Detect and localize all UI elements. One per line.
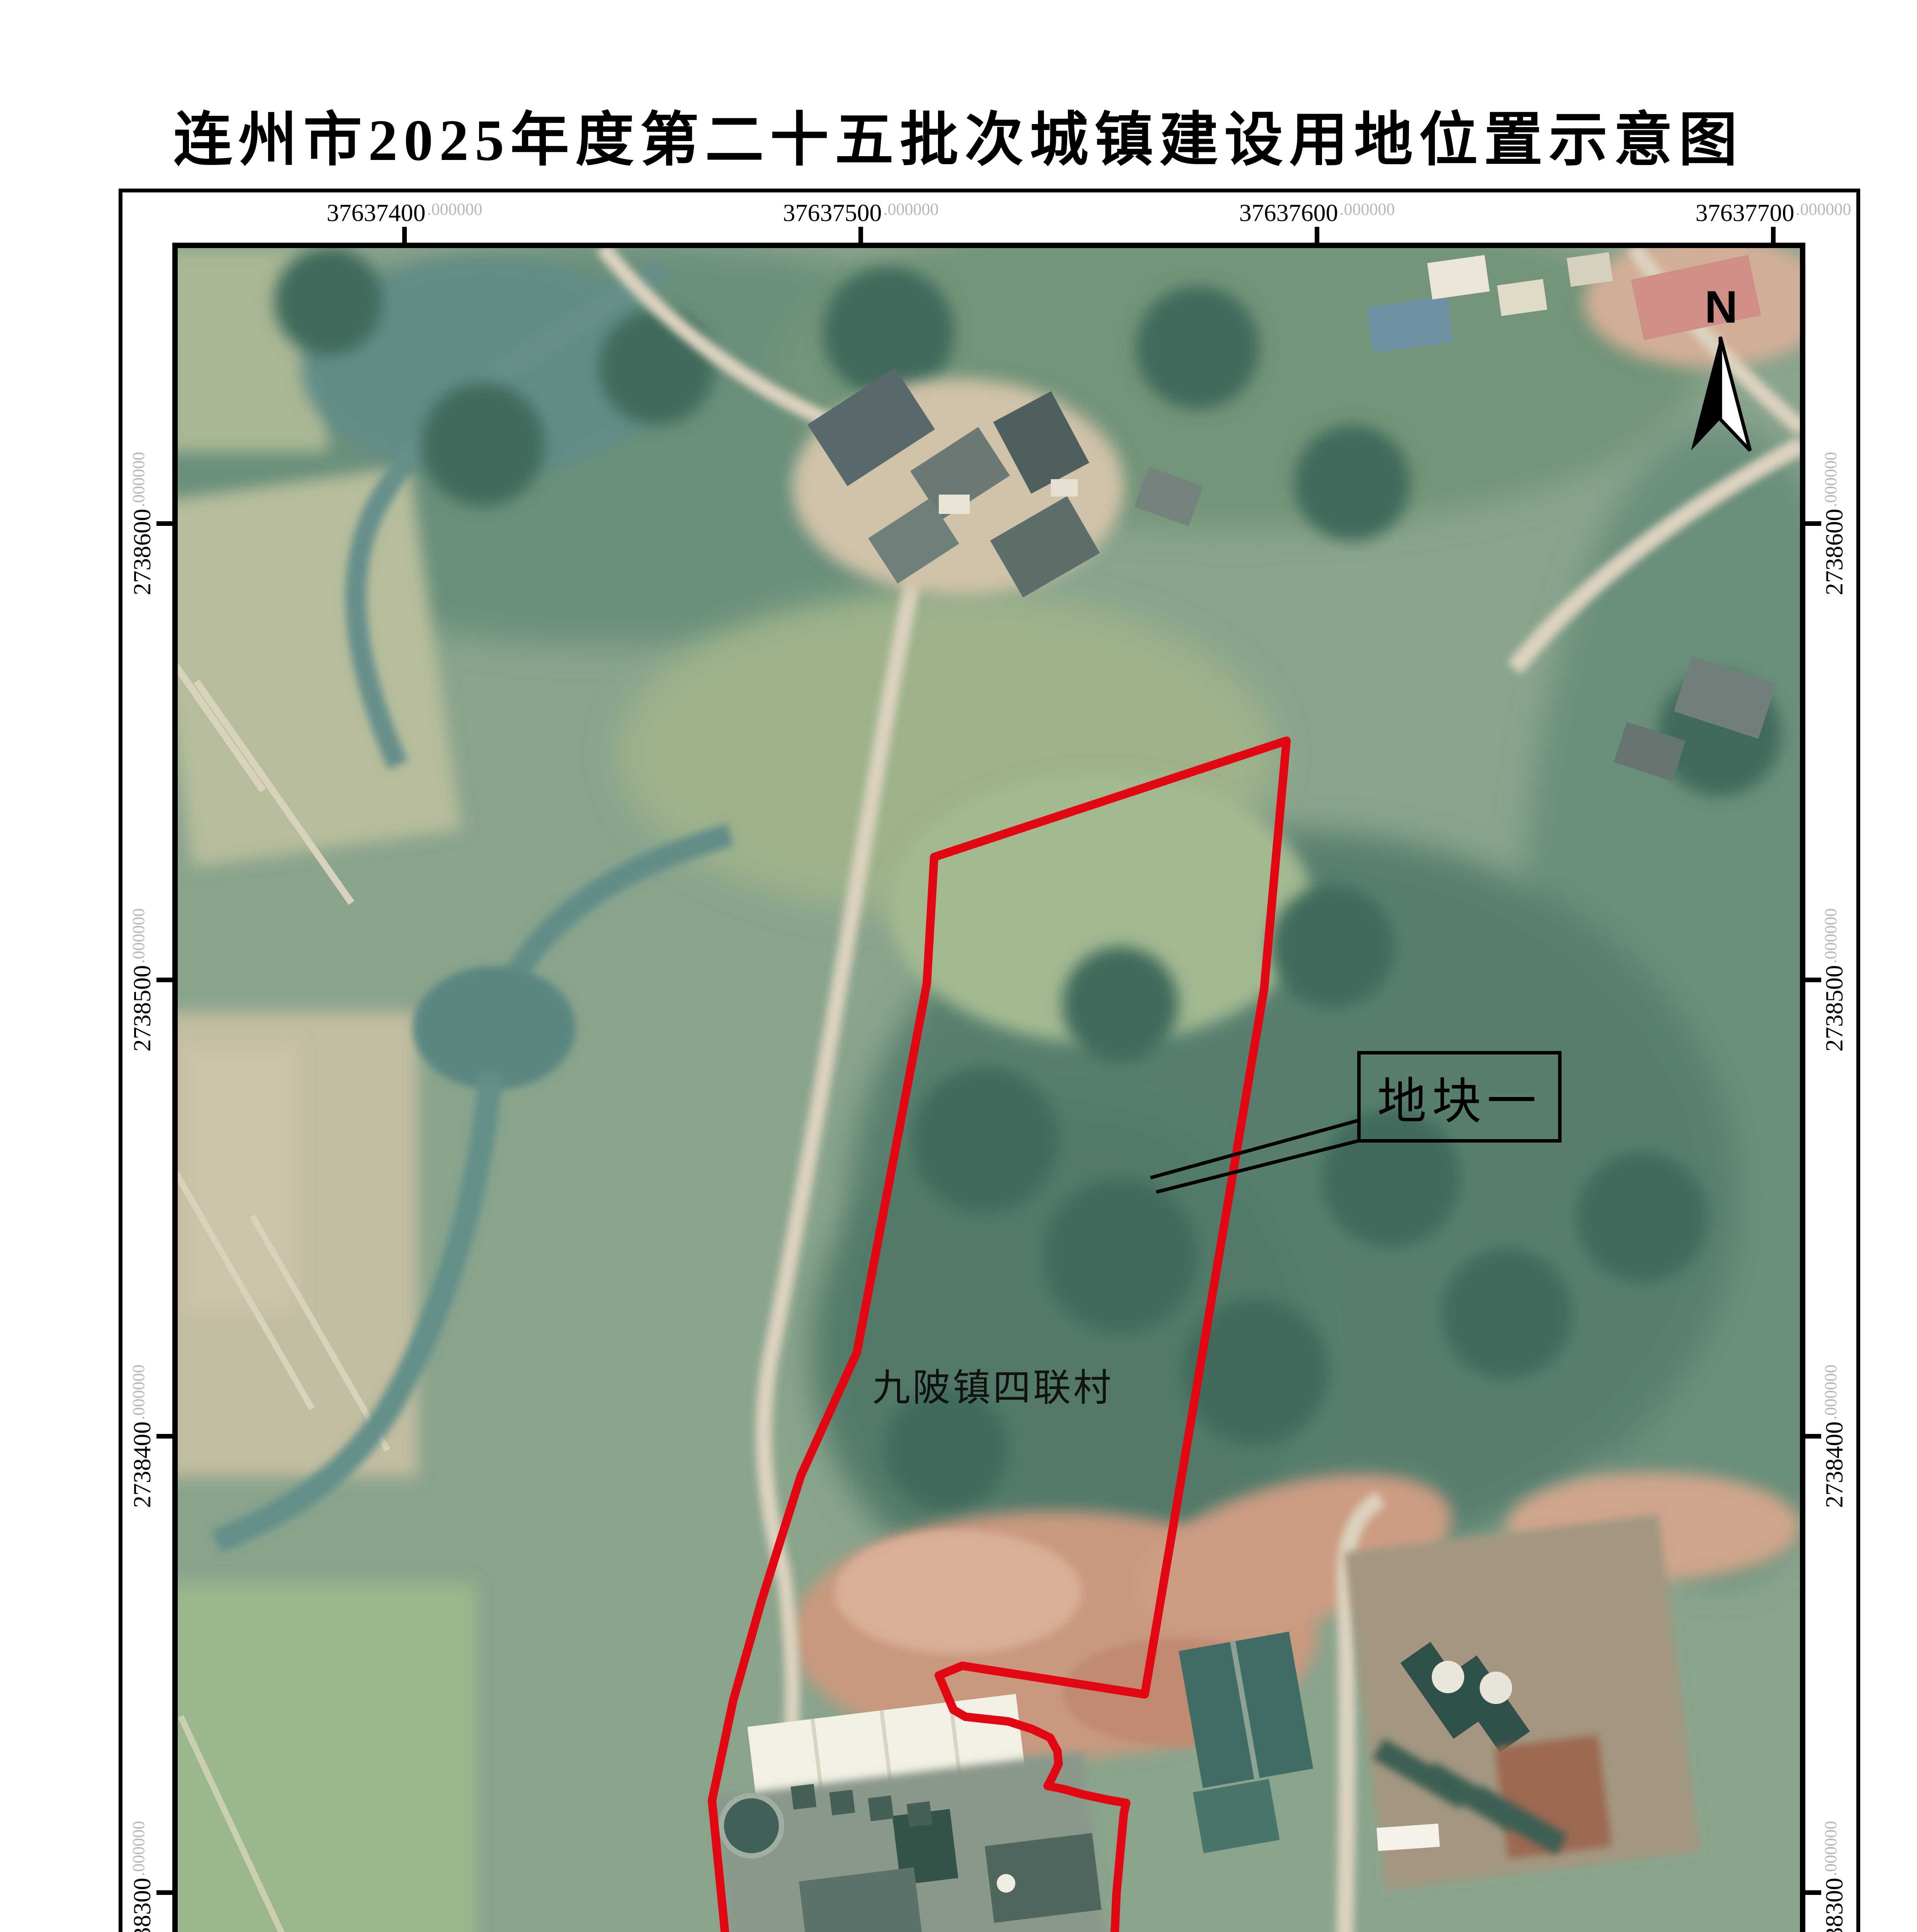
coord-label-right: 2738600.000000: [1820, 452, 1849, 595]
coord-label-right: 2738300.000000: [1820, 1821, 1849, 1932]
coord-label-right: 2738400.000000: [1820, 1365, 1849, 1508]
coord-label-left: 2738600.000000: [128, 452, 156, 595]
tick-mark: [1315, 227, 1319, 245]
north-label: N: [1673, 286, 1769, 328]
tick-mark: [1803, 521, 1821, 526]
coord-label-top: 37637600.000000: [1239, 199, 1395, 227]
coord-label-top: 37637400.000000: [327, 199, 483, 227]
page-title: 连州市2025年度第二十五批次城镇建设用地位置示意图: [0, 92, 1917, 177]
tick-mark: [1803, 1434, 1821, 1439]
tick-mark: [1803, 978, 1821, 982]
tick-mark: [156, 1434, 175, 1439]
coord-label-top: 37637500.000000: [783, 199, 939, 227]
coord-label-top: 37637700.000000: [1696, 199, 1851, 227]
parcel-label-box: 地块一: [1357, 1051, 1562, 1143]
tick-mark: [156, 978, 175, 982]
coord-label-left: 2738300.000000: [128, 1821, 156, 1932]
parcel-label: 地块一: [1377, 1061, 1541, 1133]
tick-mark: [1803, 1890, 1821, 1895]
coord-label-left: 2738400.000000: [128, 1365, 156, 1508]
north-indicator: N: [1673, 286, 1769, 328]
tick-mark: [156, 521, 175, 526]
village-label: 九陂镇四联村: [872, 1357, 1113, 1412]
coord-label-left: 2738500.000000: [128, 908, 156, 1052]
tick-mark: [156, 1890, 175, 1895]
coord-label-right: 2738500.000000: [1820, 908, 1849, 1052]
plan-sheet: 连州市2025年度第二十五批次城镇建设用地位置示意图: [0, 0, 1917, 1932]
tick-mark: [858, 227, 863, 245]
tick-mark: [1771, 227, 1776, 245]
tick-mark: [402, 227, 407, 245]
